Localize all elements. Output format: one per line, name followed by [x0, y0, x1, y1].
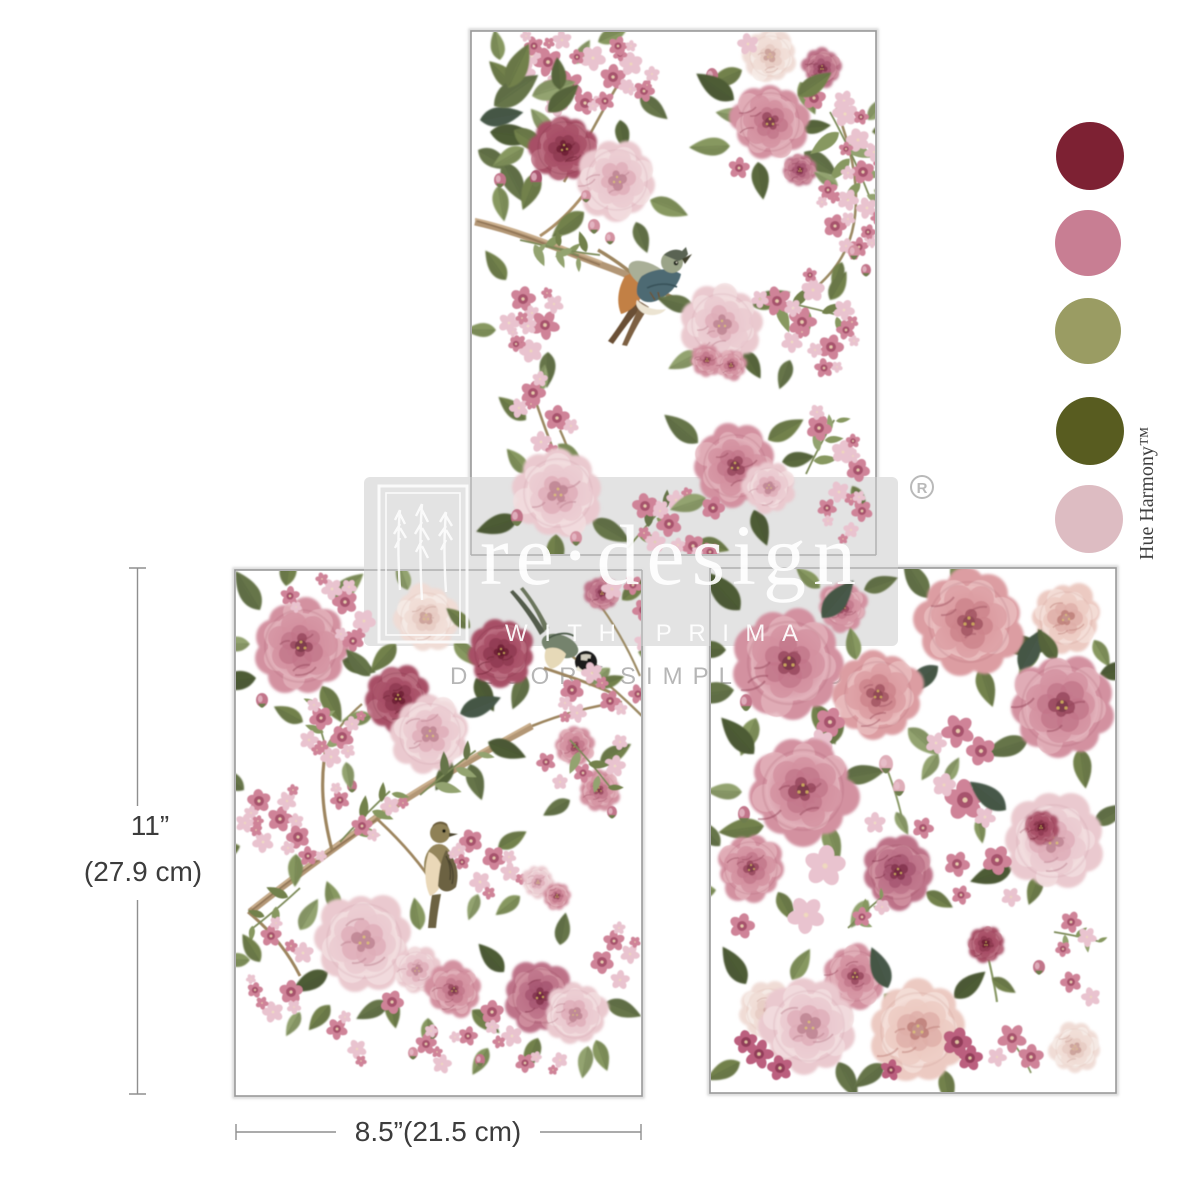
svg-text:WITH PRIMA: WITH PRIMA — [505, 620, 815, 647]
svg-text:Hue Harmony™: Hue Harmony™ — [1136, 427, 1158, 560]
svg-text:re·design: re·design — [480, 507, 862, 603]
svg-text:11”: 11” — [131, 810, 169, 841]
svg-text:8.5”(21.5 cm): 8.5”(21.5 cm) — [355, 1116, 522, 1147]
svg-text:R: R — [917, 480, 928, 497]
svg-text:(27.9 cm): (27.9 cm) — [84, 856, 202, 887]
